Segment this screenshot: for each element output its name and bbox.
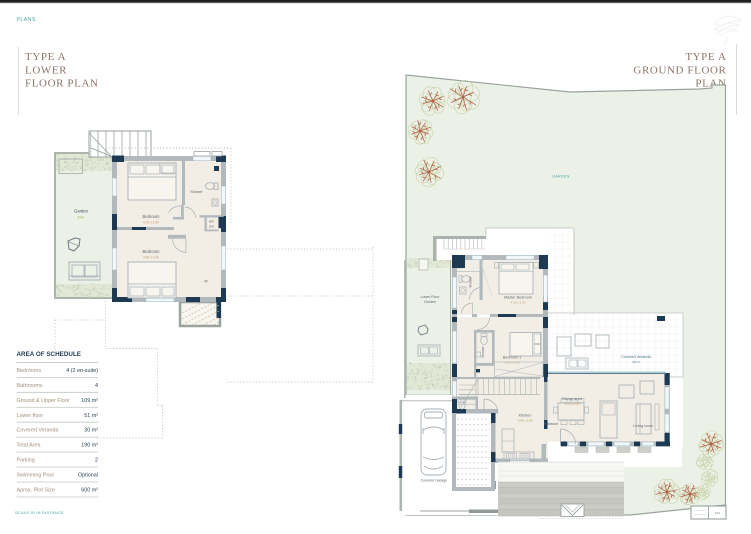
svg-text:3.40 x 2.60: 3.40 x 2.60 (518, 419, 533, 423)
svg-text:wm: wm (209, 220, 214, 224)
svg-text:PLANS: PLANS (17, 17, 36, 23)
svg-text:Garden: Garden (424, 300, 436, 304)
svg-text:Covered Veranda: Covered Veranda (621, 355, 651, 359)
svg-text:5.10 x 3.30: 5.10 x 3.30 (565, 402, 580, 406)
svg-text:Kitchen: Kitchen (519, 414, 532, 418)
svg-text:d.m: d.m (209, 225, 215, 229)
svg-text:Covered Garage: Covered Garage (421, 479, 448, 483)
svg-text:4: 4 (95, 383, 98, 389)
svg-text:2: 2 (95, 458, 98, 464)
svg-text:Bedroom: Bedroom (143, 214, 161, 219)
svg-text:30 m²: 30 m² (632, 360, 640, 364)
svg-text:GARDEN: GARDEN (552, 175, 569, 179)
svg-text:GROUND FLOOR: GROUND FLOOR (633, 65, 726, 77)
svg-text:4 (2 en-suite): 4 (2 en-suite) (66, 368, 98, 374)
svg-text:Bedrooms: Bedrooms (17, 368, 42, 374)
svg-text:Aprox. Plot Size: Aprox. Plot Size (17, 487, 55, 493)
svg-text:Entrance: Entrance (544, 422, 558, 426)
svg-text:Bedroom 1: Bedroom 1 (503, 356, 522, 360)
svg-text:600 m²: 600 m² (81, 487, 98, 493)
svg-text:AREA OF SCHEDULE: AREA OF SCHEDULE (17, 351, 82, 358)
svg-text:Shower: Shower (481, 345, 485, 357)
svg-text:4.90 x 3.90: 4.90 x 3.90 (511, 301, 526, 305)
svg-text:190 m²: 190 m² (81, 443, 98, 449)
svg-text:4.00 x 3.60: 4.00 x 3.60 (143, 221, 159, 225)
svg-text:Shower: Shower (469, 275, 473, 287)
svg-text:up: up (204, 279, 208, 283)
svg-text:Lower Floor: Lower Floor (421, 295, 441, 299)
svg-text:109 m²: 109 m² (81, 398, 98, 404)
svg-text:Living room: Living room (633, 424, 653, 428)
svg-text:Dining area: Dining area (562, 397, 582, 401)
svg-text:Lower floor: Lower floor (17, 413, 44, 419)
svg-text:30 m²: 30 m² (84, 428, 98, 434)
svg-text:Bathrooms: Bathrooms (17, 383, 43, 389)
svg-text:Optional: Optional (78, 473, 98, 479)
svg-text:3.20 x 3.00: 3.20 x 3.00 (505, 361, 520, 365)
svg-text:Parking: Parking (17, 458, 35, 464)
svg-text:TYPE A: TYPE A (25, 51, 66, 63)
svg-text:LOWER: LOWER (25, 65, 67, 77)
svg-text:KAI: KAI (715, 511, 720, 515)
svg-text:Shower: Shower (190, 190, 203, 194)
svg-text:SCALE IS IN DISTANCE: SCALE IS IN DISTANCE (15, 510, 64, 515)
svg-text:Total Area: Total Area (17, 443, 41, 449)
svg-text:Bedroom: Bedroom (143, 249, 161, 254)
svg-text:Ground & Upper Floor: Ground & Upper Floor (17, 398, 70, 404)
svg-text:Swimming Pool: Swimming Pool (17, 473, 54, 479)
svg-text:Master Bedroom: Master Bedroom (504, 296, 532, 300)
svg-text:Covered Veranda: Covered Veranda (17, 428, 59, 434)
svg-text:Garden: Garden (74, 209, 89, 214)
svg-text:TYPE A: TYPE A (685, 51, 726, 63)
svg-text:4.00 x 3.40: 4.00 x 3.40 (143, 256, 159, 260)
svg-text:51 m²: 51 m² (84, 413, 98, 419)
svg-text:5 m²: 5 m² (78, 216, 86, 220)
svg-text:FLOOR PLAN: FLOOR PLAN (25, 78, 99, 90)
